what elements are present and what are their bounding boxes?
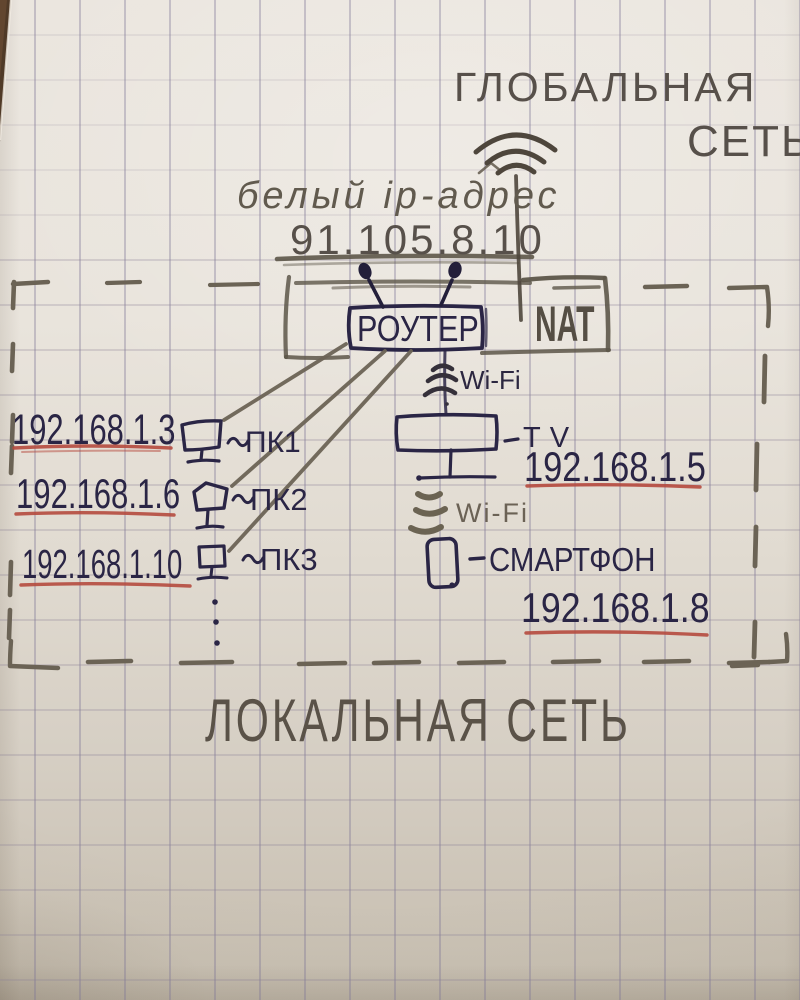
svg-text:ГЛОБАЛЬНАЯ: ГЛОБАЛЬНАЯ xyxy=(454,64,757,110)
svg-text:91.105.8.10: 91.105.8.10 xyxy=(290,216,545,263)
svg-text:192.168.1.10: 192.168.1.10 xyxy=(22,542,182,588)
svg-text:белый ip-адрес: белый ip-адрес xyxy=(237,175,561,217)
svg-text:192.168.1.8: 192.168.1.8 xyxy=(521,585,710,631)
svg-text:192.168.1.5: 192.168.1.5 xyxy=(524,444,706,491)
svg-text:ПК2: ПК2 xyxy=(250,482,308,517)
svg-text:192.168.1.3: 192.168.1.3 xyxy=(12,405,175,453)
svg-text:Wi-Fi: Wi-Fi xyxy=(460,365,521,395)
svg-text:СМАРТФОН: СМАРТФОН xyxy=(489,541,655,578)
svg-text:192.168.1.6: 192.168.1.6 xyxy=(16,470,180,517)
svg-text:РОУТЕР: РОУТЕР xyxy=(357,310,479,350)
svg-text:СЕТЬ: СЕТЬ xyxy=(687,117,800,166)
svg-text:Wi-Fi: Wi-Fi xyxy=(456,498,529,528)
svg-text:ПК1: ПК1 xyxy=(245,426,301,459)
svg-text:ПК3: ПК3 xyxy=(260,542,318,577)
svg-text:NAT: NAT xyxy=(535,296,594,352)
svg-text:ЛОКАЛЬНАЯ СЕТЬ: ЛОКАЛЬНАЯ СЕТЬ xyxy=(205,688,631,755)
